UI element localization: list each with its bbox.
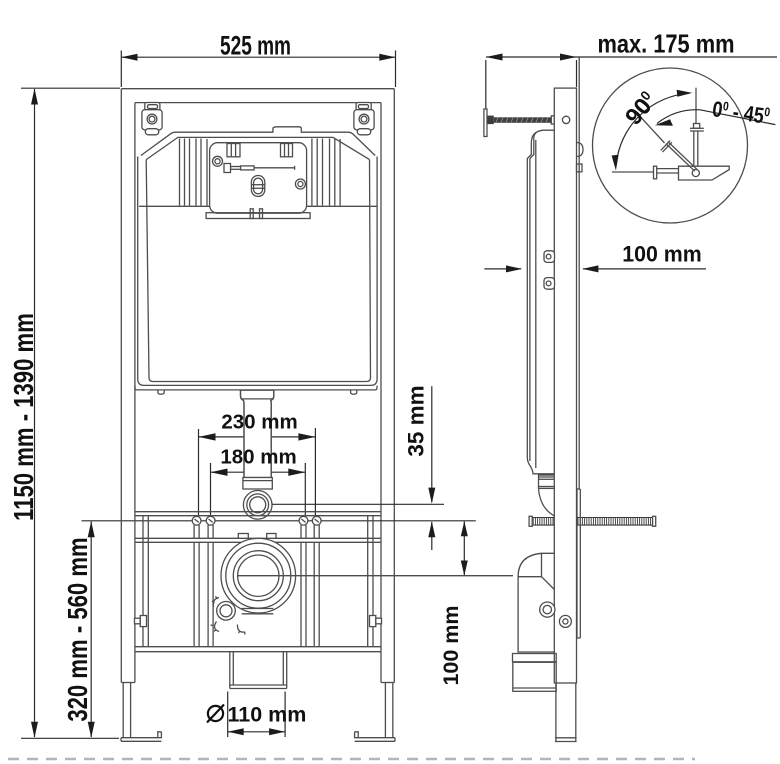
svg-text:110 mm: 110 mm [228, 703, 307, 727]
svg-text:900: 900 [620, 87, 662, 129]
svg-text:1150 mm - 1390 mm: 1150 mm - 1390 mm [9, 313, 40, 521]
svg-text:100 mm: 100 mm [622, 241, 701, 266]
svg-text:00 - 450: 00 - 450 [711, 98, 771, 130]
svg-text:180 mm: 180 mm [220, 446, 296, 469]
svg-text:max. 175 mm: max. 175 mm [597, 30, 734, 59]
svg-text:320 mm - 560 mm: 320 mm - 560 mm [63, 537, 94, 721]
svg-text:100 mm: 100 mm [439, 605, 463, 685]
svg-text:35 mm: 35 mm [404, 385, 429, 456]
svg-text:230 mm: 230 mm [221, 411, 297, 434]
svg-text:525 mm: 525 mm [220, 30, 291, 60]
